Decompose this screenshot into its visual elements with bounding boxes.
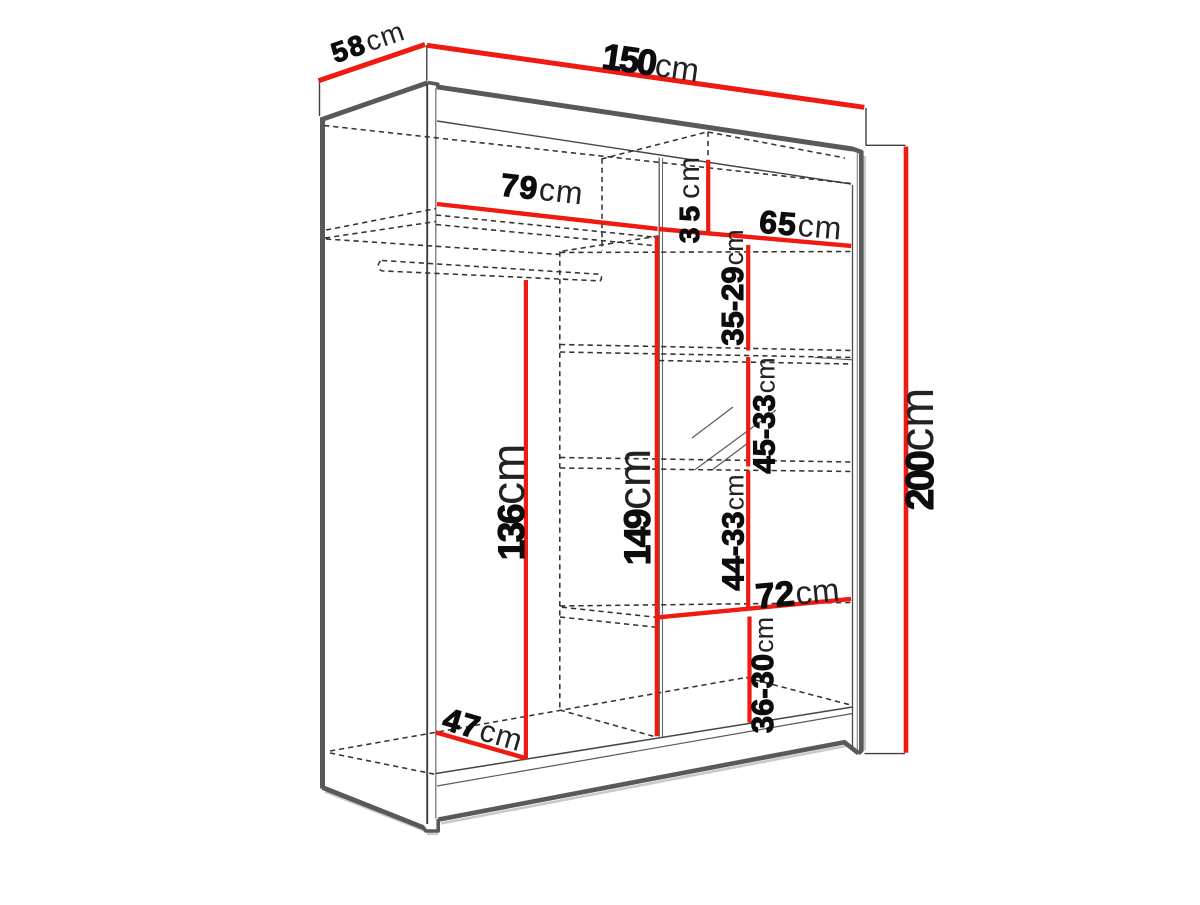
svg-text:44-33cm: 44-33cm xyxy=(716,474,751,590)
svg-text:36-30cm: 36-30cm xyxy=(745,617,780,733)
svg-text:35-29cm: 35-29cm xyxy=(715,229,750,345)
svg-text:200cm: 200cm xyxy=(891,388,944,511)
svg-text:45-33cm: 45-33cm xyxy=(747,357,782,473)
svg-text:65cm: 65cm xyxy=(758,203,844,246)
svg-text:35cm: 35cm xyxy=(673,155,706,243)
